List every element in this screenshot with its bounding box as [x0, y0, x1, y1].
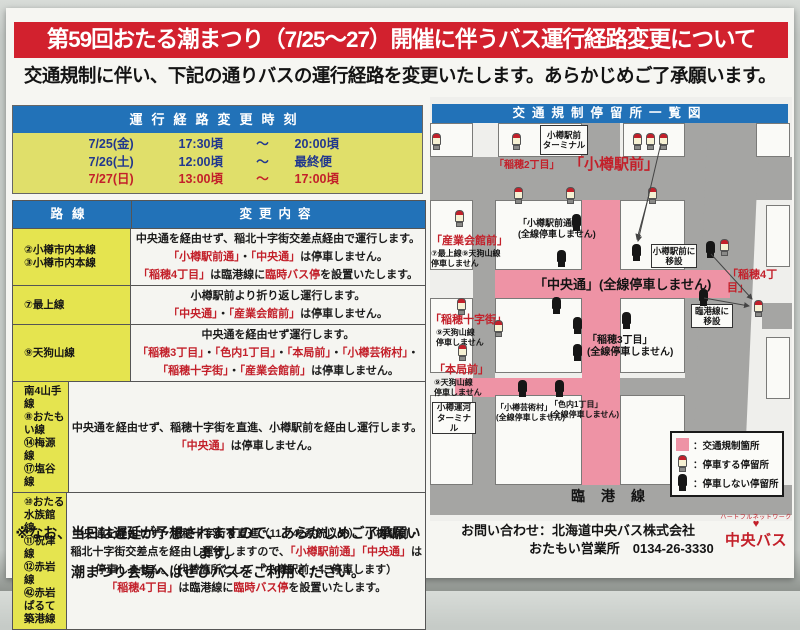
change-text-segment: を設置いたします。 [320, 269, 418, 281]
change-text-segment: は停車しません。 [300, 308, 388, 320]
change-line: 「小樽駅前通」・「中央通」は停車しません。 [134, 248, 422, 266]
map-label: 「本局前」 [434, 364, 489, 377]
logo-arc-text: ハートフルネットワーク [716, 512, 796, 521]
route-names: ⑨天狗山線 [13, 325, 131, 381]
legend-icon [675, 455, 691, 473]
schedule-row: 7/26(土)12:00頃～最終便 [13, 154, 422, 172]
change-text-segment: は停車しません。 [231, 440, 319, 452]
schedule-start: 12:00頃 [179, 154, 231, 172]
change-text-segment: ・ [204, 347, 215, 359]
footnote-line2: 潮まつり会場へはぜひバスをご利用ください。 [12, 563, 424, 583]
route-change-content: 小樽駅前より折り返し運行します。「中央通」・「産業会館前」は停車しません。 [131, 286, 425, 324]
subtitle: 交通規制に伴い、下記の通りバスの運行経路を変更いたします。あらかじめご了承願いま… [6, 62, 794, 88]
stop-head [552, 297, 561, 309]
bus-stop-icon-serving [514, 187, 523, 204]
poster: 第59回おたる潮まつり（7/25～27）開催に伴うバス運行経路変更について 交通… [6, 8, 794, 578]
map-note-box: 小樽駅前 ターミナル [540, 125, 588, 155]
schedule-date: 7/27(日) [89, 171, 155, 189]
stop-base [515, 199, 522, 204]
change-line: 「稲穂十字街」・「産業会館前」は停車しません。 [134, 362, 422, 380]
stop-head [659, 133, 668, 145]
bus-stop-icon-serving [633, 133, 642, 150]
schedule-start: 17:30頃 [179, 136, 231, 154]
stop-head [706, 241, 715, 253]
change-text-segment: 小樽駅前より折り返し運行します。 [191, 290, 366, 302]
stop-base [679, 486, 686, 491]
legend-row: ：停車しない停留所 [675, 474, 779, 492]
schedule-row: 7/25(金)17:30頃～20:00頃 [13, 136, 422, 154]
change-text-segment: は臨港線に [178, 582, 233, 594]
route-row: ⑦最上線小樽駅前より折り返し運行します。「中央通」・「産業会館前」は停車しません… [13, 285, 425, 324]
change-text-segment: ・ [229, 365, 240, 377]
map-label: 「色内1丁目」 (全線停車しません) [550, 400, 619, 420]
change-text-segment: 「中央通」 [176, 440, 231, 452]
stop-base [556, 392, 563, 397]
legend-row: ：停車する停留所 [675, 455, 779, 473]
change-text-segment: 「稲穂十字街」 [157, 365, 229, 377]
stop-base [553, 309, 560, 314]
schedule-start: 13:00頃 [179, 171, 231, 189]
route-names: ②小樽市内本線 ③小樽市内本線 [13, 229, 131, 285]
contact-info: お問い合わせ：北海道中央バス株式会社 おたもい営業所 0134-26-3330 [461, 522, 714, 558]
change-text-segment: 「産業会館前」 [240, 365, 312, 377]
change-text-segment: 中央通を経由せず運行します。 [202, 329, 355, 341]
change-text-segment: 「小樽駅前通」 [168, 251, 240, 263]
stop-head [720, 239, 729, 251]
stop-base [456, 222, 463, 227]
map-label: 「小樽駅前通」 (全線停車しません) [518, 218, 596, 240]
stop-head [648, 187, 657, 199]
stop-base [647, 145, 654, 150]
bus-stop-icon-serving [646, 133, 655, 150]
map-label: ⑦最上線⑨天狗山線 停車しません [431, 249, 501, 269]
map-label: 「稲穂3丁目」 (全線停車しません) [587, 335, 673, 359]
map-label: 「中央通」(全線停車しません) [534, 277, 711, 292]
change-text-segment: は臨港線に [210, 269, 265, 281]
route-change-content: 中央通を経由せず運行します。「稲穂3丁目」・「色内1丁目」・「本局前」・「小樽芸… [131, 325, 425, 381]
stop-head [457, 298, 466, 310]
change-line: 「稲穂4丁目」は臨港線に臨時バス停を設置いたします。 [134, 266, 422, 284]
contact-line1: お問い合わせ：北海道中央バス株式会社 [461, 522, 714, 540]
logo-name: 中央バス [716, 529, 796, 550]
stop-head [678, 474, 687, 486]
bus-stop-icon-serving [455, 210, 464, 227]
bus-stop-icon-serving [754, 300, 763, 317]
map-label: 「稲穂2丁目」 [494, 160, 560, 172]
legend-label: ：停車しない停留所 [693, 476, 779, 490]
bus-stop-icon-closed [557, 250, 566, 267]
change-text-segment: 「稲穂3丁目」 [137, 347, 204, 359]
change-text-segment: ・ [240, 251, 251, 263]
bus-stop-icon-serving [432, 133, 441, 150]
legend-row: ：交通規制箇所 [675, 436, 779, 454]
city-block [495, 298, 582, 373]
schedule-date: 7/26(土) [89, 154, 155, 172]
change-text-segment: 「中央通」 [251, 251, 301, 263]
map-label: ⑨天狗山線 停車しません [434, 378, 482, 398]
bus-stop-icon-closed [518, 380, 527, 397]
change-text-segment: 「中央通」 [168, 308, 218, 320]
schedule-end: 20:00頃 [295, 136, 347, 154]
stop-base [623, 324, 630, 329]
legend-icon [675, 436, 691, 454]
change-text-segment: は停車しません。 [311, 365, 399, 377]
contact-line2: おたもい営業所 0134-26-3330 [461, 540, 714, 558]
schedule-body: 7/25(金)17:30頃～20:00頃7/26(土)12:00頃～最終便7/2… [13, 133, 422, 193]
bus-stop-icon-serving [494, 320, 503, 337]
stop-base [519, 392, 526, 397]
change-line: 小樽駅前より折り返し運行します。 [134, 287, 422, 305]
schedule-tilde: ～ [255, 136, 271, 154]
change-text-segment: ・ [331, 347, 342, 359]
stop-head [573, 317, 582, 329]
schedule-date: 7/25(金) [89, 136, 155, 154]
stop-head [678, 455, 687, 467]
chuo-bus-logo: ハートフルネットワーク ♥ 中央バス [716, 510, 796, 550]
map-label: 「稲穂4丁目」 [727, 269, 792, 295]
city-block [766, 205, 790, 267]
stop-head [518, 380, 527, 392]
bus-stop-icon-serving [720, 239, 729, 256]
change-line: 中央通を経由せず、稲穂十字街を直進、小樽駅前を経由し運行します。 [72, 419, 422, 437]
city-block [756, 123, 790, 157]
footnote: ※なお、当日は遅延が予想されますので、あらかじめご了承願います。 潮まつり会場へ… [12, 524, 424, 583]
bus-stop-icon-closed [552, 297, 561, 314]
change-text-segment: 「稲穂4丁目」 [106, 582, 178, 594]
city-block [766, 337, 790, 399]
map-note-box: 小樽運河 ターミナル [432, 402, 476, 434]
bus-stop-icon-serving [457, 298, 466, 315]
route-row: 南4山手線 ⑧おたもい線 ⑭梅源線 ⑰塩谷線中央通を経由せず、稲穂十字街を直進、… [13, 381, 425, 492]
map-label: 「小樽駅前」 [569, 156, 659, 173]
map-legend: ：交通規制箇所：停車する停留所：停車しない停留所 [670, 431, 784, 497]
change-line: 中央通を経由せず、稲北十字街交差点経由で運行します。 [134, 230, 422, 248]
schedule-end: 最終便 [295, 154, 347, 172]
bus-stop-icon-closed [706, 241, 715, 258]
change-text-segment: 「本局前」 [287, 347, 331, 359]
change-text-segment: 「稲穂4丁目」 [138, 269, 210, 281]
bus-stop-icon-serving [678, 455, 687, 472]
stop-base [558, 262, 565, 267]
page-title: 第59回おたる潮まつり（7/25～27）開催に伴うバス運行経路変更について [14, 22, 788, 58]
bus-stop-icon-serving [512, 133, 521, 150]
bus-stop-icon-closed [555, 380, 564, 397]
stop-head [754, 300, 763, 312]
stop-head [512, 133, 521, 145]
stop-head [699, 289, 708, 301]
change-text-segment: 「小樽芸術村」 [342, 347, 408, 359]
change-line: 「稲穂3丁目」・「色内1丁目」・「本局前」・「小樽芸術村」・ [134, 344, 422, 362]
regulated-area-swatch [676, 438, 689, 451]
map-title: 交通規制停留所一覧図 [432, 104, 788, 123]
stop-head [646, 133, 655, 145]
change-line: 「中央通」は停車しません。 [72, 437, 422, 455]
bus-stop-icon-closed [699, 289, 708, 306]
schedule-table: 運行経路変更時刻 7/25(金)17:30頃～20:00頃7/26(土)12:0… [12, 105, 423, 194]
stop-base [679, 467, 686, 472]
route-change-content: 中央通を経由せず、稲北十字街交差点経由で運行します。「小樽駅前通」・「中央通」は… [131, 229, 425, 285]
column-route: 路線 [13, 201, 132, 228]
stop-base [574, 329, 581, 334]
stop-base [755, 312, 762, 317]
stop-head [494, 320, 503, 332]
schedule-end: 17:00頃 [295, 171, 347, 189]
stop-head [455, 210, 464, 222]
legend-label: ：交通規制箇所 [693, 438, 760, 452]
bus-stop-icon-closed [622, 312, 631, 329]
stop-head [632, 244, 641, 256]
stop-base [634, 145, 641, 150]
change-text-segment: ・ [276, 347, 287, 359]
schedule-tilde: ～ [255, 154, 271, 172]
schedule-tilde: ～ [255, 171, 271, 189]
stop-base [459, 356, 466, 361]
change-line: 中央通を経由せず運行します。 [134, 326, 422, 344]
route-names: ⑦最上線 [13, 286, 131, 324]
stop-head [514, 187, 523, 199]
bus-stop-icon-serving [458, 344, 467, 361]
stop-base [721, 251, 728, 256]
change-text-segment: 中央通を経由せず、稲穂十字街を直進、小樽駅前を経由し運行します。 [72, 422, 422, 434]
map-note-box: 小樽駅前に 移設 [651, 244, 697, 268]
route-row: ②小樽市内本線 ③小樽市内本線中央通を経由せず、稲北十字街交差点経由で運行します… [13, 228, 425, 285]
bus-stop-icon-closed [572, 214, 581, 231]
stop-base [633, 256, 640, 261]
schedule-header: 運行経路変更時刻 [13, 106, 422, 133]
stop-base [649, 199, 656, 204]
change-text-segment: は停車しません。 [300, 251, 388, 263]
stop-head [633, 133, 642, 145]
change-text-segment: 「色内1丁目」 [215, 347, 276, 359]
stop-base [433, 145, 440, 150]
stop-base [700, 301, 707, 306]
stop-head [566, 187, 575, 199]
change-text-segment: 臨時バス停 [233, 582, 288, 594]
stop-base [567, 199, 574, 204]
regulation-map: 交通規制停留所一覧図 「稲穂2丁目」「小樽駅前」「小樽駅前通」 (全線停車しませ… [430, 97, 792, 521]
stop-head [555, 380, 564, 392]
stop-base [660, 145, 667, 150]
change-text-segment: 中央通を経由せず、稲北十字街交差点経由で運行します。 [136, 233, 420, 245]
route-names: 南4山手線 ⑧おたもい線 ⑭梅源線 ⑰塩谷線 [13, 382, 69, 492]
stop-head [458, 344, 467, 356]
road-far-right [762, 303, 792, 329]
change-text-segment: 「産業会館前」 [229, 308, 301, 320]
stop-base [574, 356, 581, 361]
legend-icon [675, 474, 691, 492]
change-line: 「中央通」・「産業会館前」は停車しません。 [134, 305, 422, 323]
schedule-row: 7/27(日)13:00頃～17:00頃 [13, 171, 422, 189]
column-change: 変更内容 [132, 201, 425, 228]
bus-stop-icon-closed [573, 344, 582, 361]
stop-base [573, 226, 580, 231]
stop-head [572, 214, 581, 226]
stop-base [495, 332, 502, 337]
stop-head [557, 250, 566, 262]
bus-stop-icon-closed [632, 244, 641, 261]
change-text-segment: を設置いたします。 [288, 582, 386, 594]
bus-stop-icon-serving [648, 187, 657, 204]
legend-label: ：停車する停留所 [693, 457, 769, 471]
stop-base [707, 253, 714, 258]
stop-head [622, 312, 631, 324]
bus-stop-icon-closed [678, 474, 687, 491]
map-label: 「産業会館前」 [431, 235, 508, 248]
route-change-content: 中央通を経由せず、稲穂十字街を直進、小樽駅前を経由し運行します。「中央通」は停車… [69, 382, 425, 492]
bus-stop-icon-serving [566, 187, 575, 204]
bus-stop-icon-serving [659, 133, 668, 150]
stop-head [432, 133, 441, 145]
map-note-box: 臨港線に 移設 [691, 304, 733, 328]
route-row: ⑨天狗山線中央通を経由せず運行します。「稲穂3丁目」・「色内1丁目」・「本局前」… [13, 324, 425, 381]
change-text-segment: 臨時バス停 [265, 269, 320, 281]
route-table-header: 路線 変更内容 [13, 201, 425, 228]
stop-base [458, 310, 465, 315]
stop-head [573, 344, 582, 356]
footnote-line1: ※なお、当日は遅延が予想されますので、あらかじめご了承願います。 [12, 524, 424, 563]
stop-base [513, 145, 520, 150]
change-text-segment: ・ [218, 308, 229, 320]
bus-stop-icon-closed [573, 317, 582, 334]
change-text-segment: ・ [408, 347, 419, 359]
